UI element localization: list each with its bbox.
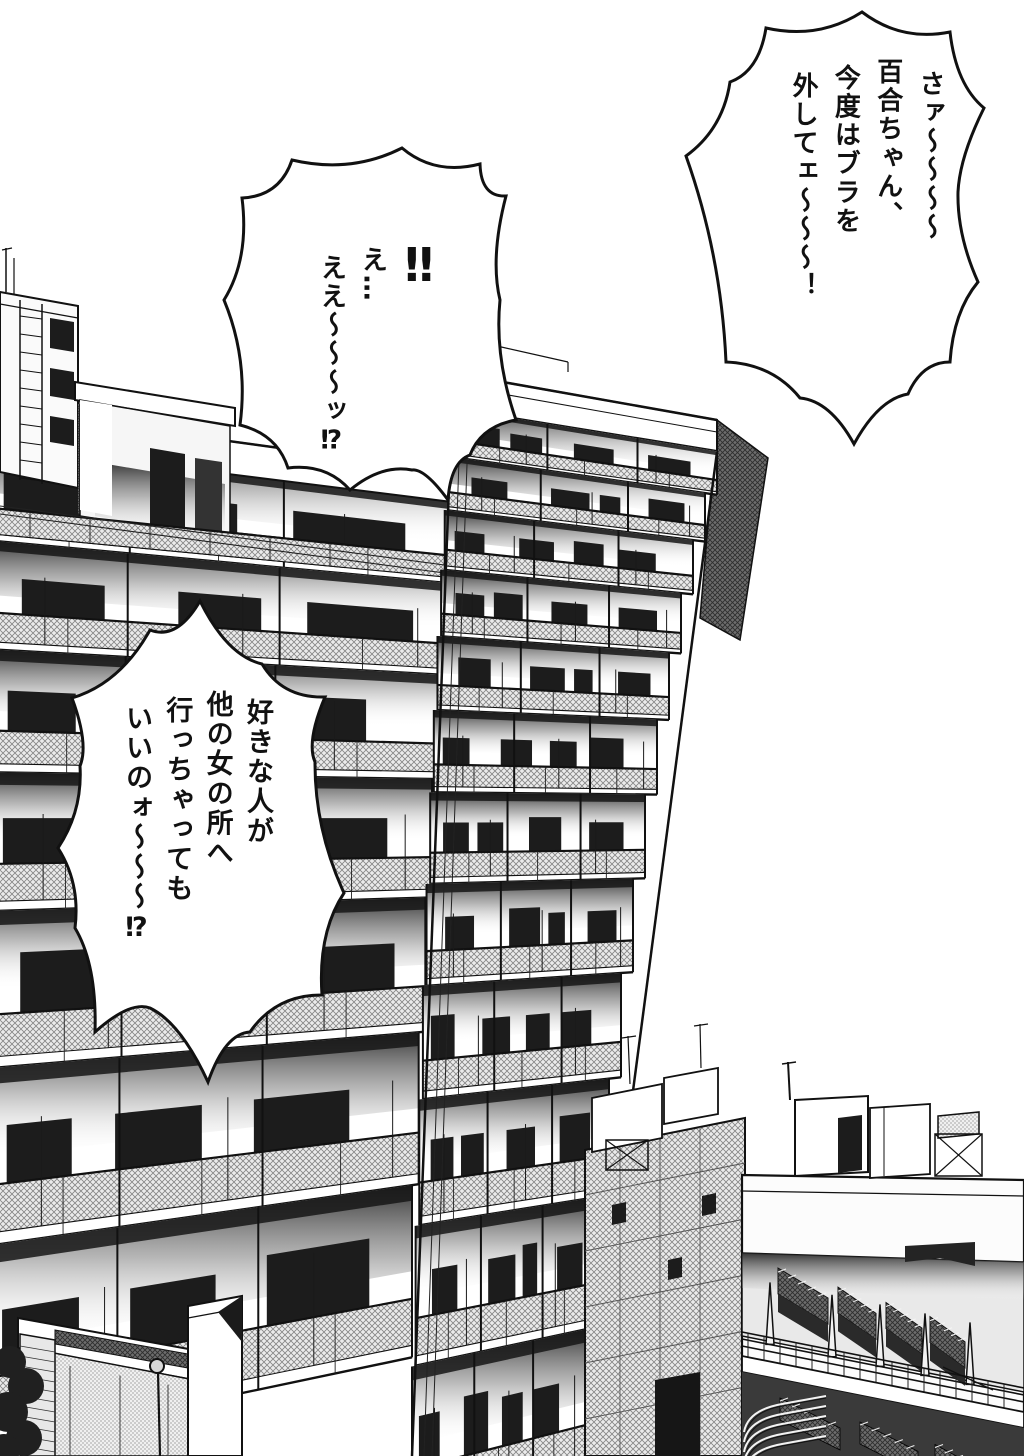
staircase-building (742, 1062, 1024, 1456)
bubble-text-column: 好きな人が (238, 690, 276, 1072)
bubble-text-column: 外してェ〜〜〜！ (783, 58, 823, 428)
speech-bubble-top-right-text: さァ〜〜〜〜 百合ちゃん、 今度はブラを 外してェ〜〜〜！ (770, 58, 952, 428)
bubble-text-column: 百合ちゃん、 (867, 58, 907, 428)
bubble-text-column: いいのォ〜〜〜⁉ (117, 690, 155, 1072)
bubble-text-column: さァ〜〜〜〜 (910, 58, 950, 428)
bubble-text-column: え… (352, 236, 391, 536)
speech-bubble-question-text: 好きな人が 他の女の所へ 行っちゃっても いいのォ〜〜〜⁉ (102, 690, 278, 1072)
manga-page: さァ〜〜〜〜 百合ちゃん、 今度はブラを 外してェ〜〜〜！ ‼ え… ええ〜〜〜… (0, 0, 1024, 1456)
bubble-text-column: 他の女の所へ (197, 690, 235, 1072)
bubble-text-column: 今度はブラを (825, 58, 865, 428)
bubble-text-column: 行っちゃっても (157, 690, 195, 1072)
bubble-text-column: ‼ (393, 236, 444, 536)
bubble-text-column: ええ〜〜〜ッ⁉ (311, 236, 350, 536)
speech-bubble-exclamation-text: ‼ え… ええ〜〜〜ッ⁉ (296, 236, 446, 536)
